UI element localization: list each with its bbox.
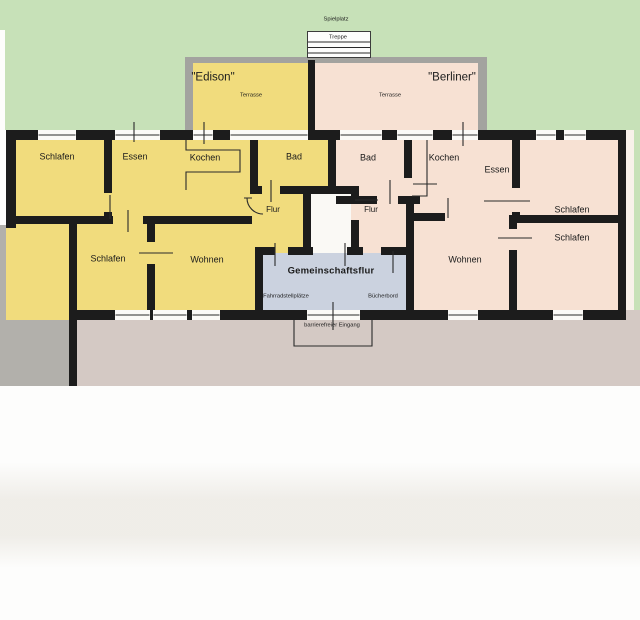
wall-segment [509, 215, 626, 223]
label-schlafen-edison-1: Schlafen [39, 153, 74, 162]
wall-segment [104, 212, 112, 224]
label-barrierefreier-eingang: barrierefreier Eingang [304, 322, 360, 328]
label-bad-edison: Bad [286, 153, 302, 162]
wall-segment [478, 310, 553, 320]
window [448, 310, 478, 320]
paper-shade [0, 462, 640, 568]
wall-segment [404, 196, 412, 204]
wall-segment [512, 140, 520, 188]
wall-segment [556, 130, 564, 140]
window [115, 130, 160, 140]
label-edison-name: "Edison" [191, 72, 234, 84]
left-margin [0, 30, 5, 225]
wall-segment [263, 247, 275, 255]
wall-segment [76, 130, 115, 140]
label-berliner-name: "Berliner" [428, 72, 476, 84]
window [553, 310, 583, 320]
label-essen-berliner: Essen [484, 166, 509, 175]
wall-segment [303, 194, 311, 255]
wall-segment [336, 196, 377, 204]
window [340, 130, 382, 140]
wall-segment [104, 140, 112, 193]
label-terrasse-edison: Terrasse [240, 92, 262, 98]
window [307, 310, 360, 320]
wall-segment [213, 130, 230, 140]
label-schlafen-berliner-2: Schlafen [554, 234, 589, 243]
wall-segment [147, 264, 155, 312]
lawn-right-strip [634, 130, 640, 310]
wall-segment [347, 247, 363, 255]
window [153, 310, 187, 320]
wall-segment [69, 310, 115, 320]
window [115, 310, 150, 320]
window [38, 130, 76, 140]
gemeinschaftsflur-area [263, 253, 406, 310]
label-kochen-berliner: Kochen [429, 154, 460, 163]
right-margin [626, 130, 634, 310]
wall-segment [509, 223, 517, 229]
wall-segment [6, 216, 77, 224]
label-schlafen-berliner-1: Schlafen [554, 206, 589, 215]
label-flur-berliner: Flur [364, 206, 378, 214]
wall-segment [143, 216, 252, 224]
window [397, 130, 433, 140]
label-bad-berliner: Bad [360, 154, 376, 163]
wall-segment [509, 250, 517, 312]
wall-segment [280, 186, 359, 194]
wall-segment [6, 130, 16, 228]
wall-segment [147, 224, 155, 242]
label-wohnen-berliner: Wohnen [448, 256, 481, 265]
wall-segment [360, 310, 448, 320]
wall-segment [406, 213, 445, 221]
window [230, 130, 308, 140]
label-buecherbord: Bücherbord [368, 293, 398, 299]
wall-segment [220, 310, 307, 320]
label-terrasse-berliner: Terrasse [379, 92, 401, 98]
wall-segment [433, 130, 452, 140]
label-wohnen-edison: Wohnen [190, 256, 223, 265]
window [452, 130, 478, 140]
wall-segment [618, 130, 626, 320]
label-schlafen-edison-2: Schlafen [90, 255, 125, 264]
label-treppe: Treppe [329, 34, 347, 40]
wall-segment [382, 130, 397, 140]
wall-segment [288, 247, 313, 255]
wall-segment [381, 247, 407, 255]
label-flur-edison: Flur [266, 206, 280, 214]
label-essen-edison: Essen [122, 153, 147, 162]
wall-segment [404, 140, 412, 178]
wall-segment [160, 130, 193, 140]
label-fahrradstellplaetze: Fahrradstellplätze [263, 293, 309, 299]
label-gemeinschaftsflur: Gemeinschaftsflur [288, 266, 375, 276]
floor-plan-scan: SpielplatzTreppe"Edison"Terrasse"Berline… [0, 0, 640, 620]
label-spielplatz: Spielplatz [324, 16, 349, 22]
wall-segment [478, 130, 536, 140]
window [564, 130, 586, 140]
wall-segment [255, 247, 263, 312]
wall-segment [250, 186, 262, 194]
wall-segment [583, 310, 626, 320]
window [192, 310, 220, 320]
window [536, 130, 556, 140]
window [193, 130, 213, 140]
wall-segment [328, 130, 336, 194]
label-kochen-edison: Kochen [190, 154, 221, 163]
wall-segment [69, 216, 77, 386]
